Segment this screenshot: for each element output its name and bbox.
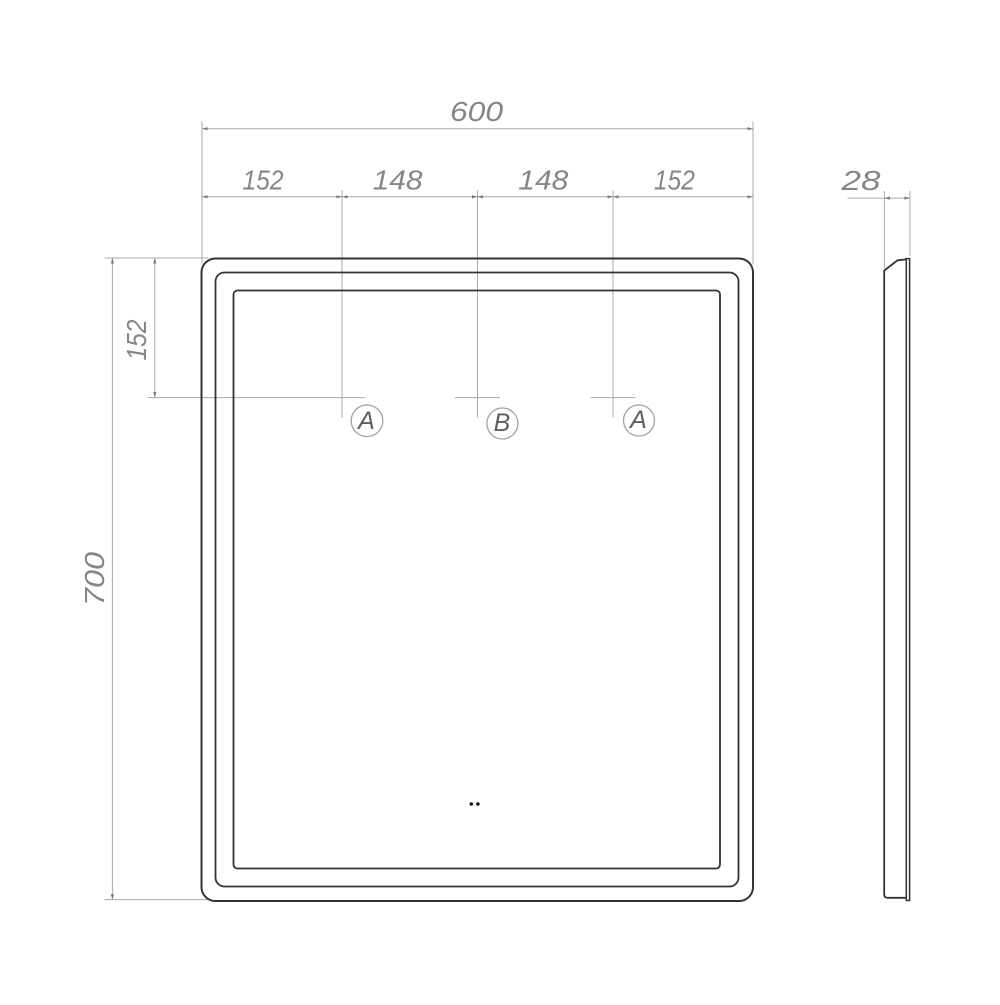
svg-text:B: B (494, 409, 511, 437)
svg-text:28: 28 (840, 165, 881, 196)
svg-text:700: 700 (79, 552, 110, 606)
svg-text:152: 152 (121, 319, 152, 360)
svg-text:600: 600 (450, 96, 503, 127)
svg-text:148: 148 (518, 165, 568, 196)
svg-text:152: 152 (654, 165, 695, 196)
svg-text:152: 152 (243, 165, 284, 196)
svg-text:148: 148 (373, 165, 423, 196)
svg-text:A: A (628, 406, 647, 434)
svg-text:A: A (356, 407, 375, 435)
